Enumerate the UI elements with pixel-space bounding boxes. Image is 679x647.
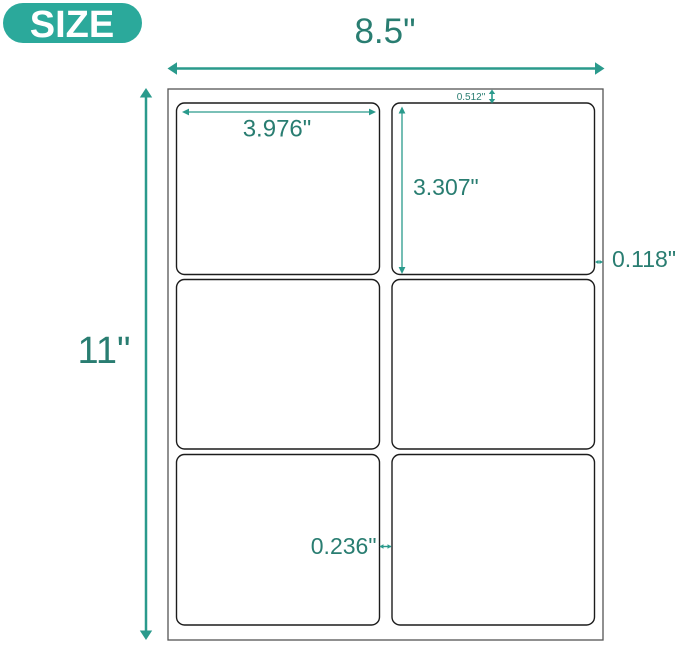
- svg-text:0.118": 0.118": [612, 246, 676, 272]
- svg-text:3.307": 3.307": [413, 174, 479, 200]
- svg-text:3.976": 3.976": [243, 116, 312, 143]
- svg-text:0.512": 0.512": [457, 92, 486, 103]
- svg-text:8.5": 8.5": [354, 12, 415, 51]
- svg-text:SIZE: SIZE: [30, 4, 114, 46]
- svg-text:11": 11": [78, 330, 131, 372]
- svg-text:0.236": 0.236": [311, 533, 377, 559]
